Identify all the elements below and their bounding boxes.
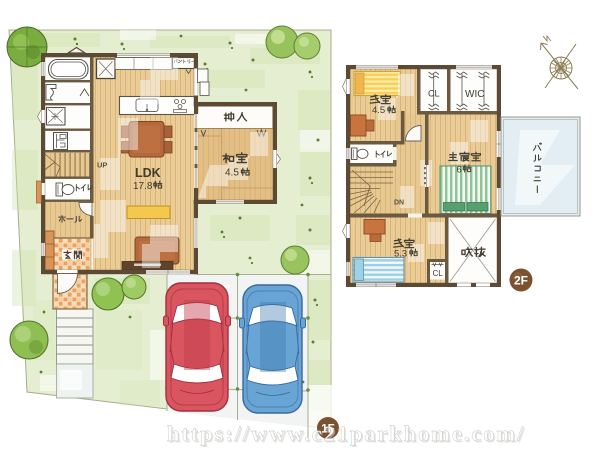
svg-text:4.5: 4.5 <box>225 168 239 179</box>
svg-text:LDK: LDK <box>135 166 161 180</box>
svg-text:WIC: WIC <box>465 89 484 100</box>
svg-text:17.8: 17.8 <box>133 181 153 192</box>
svg-text:UP: UP <box>97 161 107 170</box>
svg-text:5.3: 5.3 <box>394 249 407 260</box>
svg-text:4.5: 4.5 <box>372 105 385 116</box>
svg-text:https://www.c21parkhome.com/: https://www.c21parkhome.com/ <box>167 421 525 446</box>
svg-text:2F: 2F <box>514 274 528 288</box>
svg-text:CL: CL <box>433 269 444 278</box>
svg-text:DN: DN <box>394 200 404 207</box>
svg-text:6: 6 <box>457 165 462 176</box>
svg-text:CL: CL <box>428 89 440 99</box>
